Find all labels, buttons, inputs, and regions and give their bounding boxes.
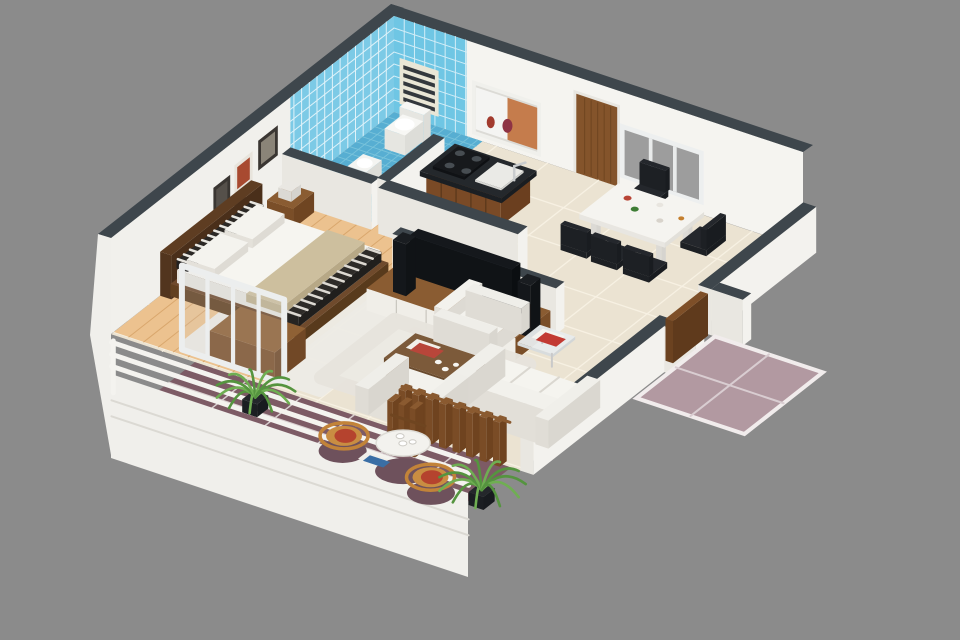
wood-slat-screen xyxy=(459,404,466,454)
tv-feature-wall xyxy=(556,282,564,335)
food-plate xyxy=(656,218,663,222)
wood-slat-screen xyxy=(439,403,446,449)
cup xyxy=(399,441,407,446)
red-cushion xyxy=(334,429,356,443)
sofa-arm xyxy=(535,416,548,448)
dining-chair-back xyxy=(587,229,591,252)
scene-canvas xyxy=(0,0,960,640)
armchair-arm xyxy=(355,385,368,415)
stove-burner xyxy=(472,156,482,162)
coffee-cup xyxy=(442,367,449,371)
cup xyxy=(409,440,416,444)
bed-headboard xyxy=(160,252,171,300)
food-plate xyxy=(656,203,663,207)
floor-plan-3d-render xyxy=(0,0,960,640)
speaker xyxy=(406,237,416,297)
wood-slat-screen xyxy=(493,421,500,467)
food-plate xyxy=(624,196,632,201)
west-wall-end xyxy=(90,234,111,455)
wood-slat-screen xyxy=(486,413,493,463)
window-mullion xyxy=(673,146,677,192)
stove-burner xyxy=(461,168,471,174)
wood-slat-screen xyxy=(480,416,487,462)
wood-slat-screen xyxy=(473,408,480,458)
door-jamb-stub xyxy=(743,293,751,346)
window-red-object xyxy=(487,116,495,128)
wood-slat-screen xyxy=(453,407,460,453)
food-plate xyxy=(678,216,684,220)
window-red-object xyxy=(502,119,512,133)
dining-chair-back xyxy=(617,241,621,264)
coffee-cup xyxy=(453,363,459,367)
coffee-cup xyxy=(435,360,442,364)
food-plate xyxy=(631,207,639,212)
dining-chair-back xyxy=(649,253,653,276)
dining-chair-back xyxy=(666,168,670,193)
speaker xyxy=(393,240,406,296)
wood-slat-screen xyxy=(446,399,453,449)
balcony-door-leaf xyxy=(666,319,674,364)
toilet-seat xyxy=(395,118,415,130)
wood-slat-screen xyxy=(466,412,473,458)
cup xyxy=(396,434,404,439)
wood-slat-screen xyxy=(432,395,439,445)
stove-burner xyxy=(455,150,465,156)
wood-slat-screen xyxy=(500,417,507,467)
stove-burner xyxy=(445,163,455,169)
dining-chair-back xyxy=(701,228,707,250)
sink-basin xyxy=(357,158,373,168)
